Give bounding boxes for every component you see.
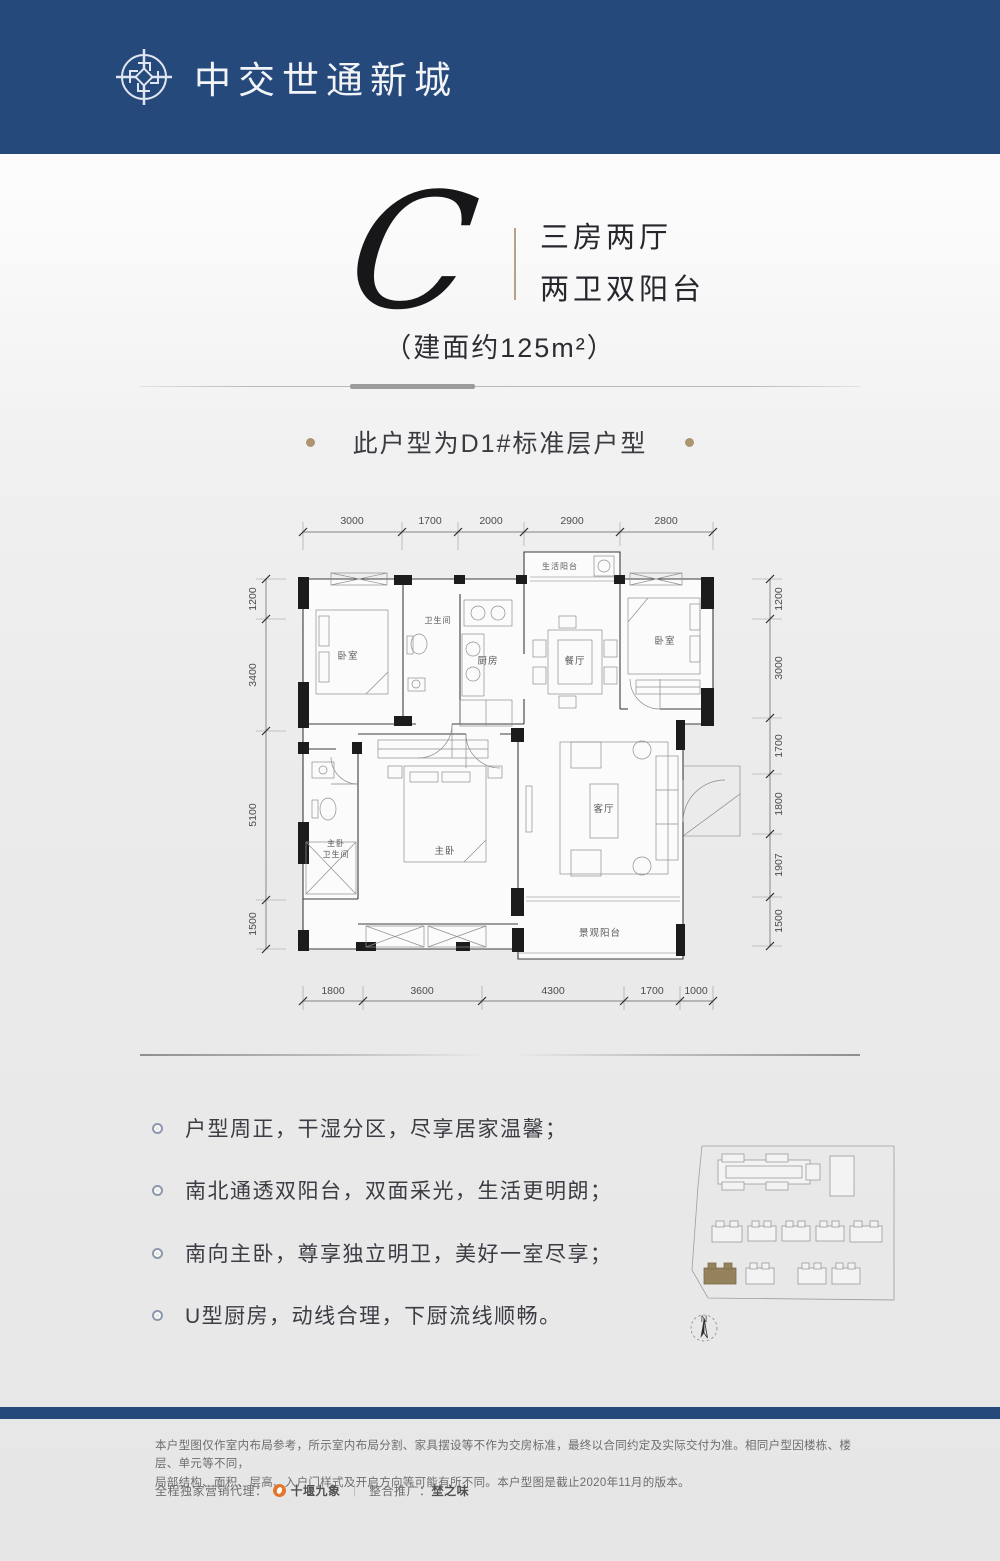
dim-label: 1000 xyxy=(684,985,708,997)
room-label-bedroom-right: 卧室 xyxy=(654,635,675,647)
dim-label: 1200 xyxy=(247,587,259,611)
site-building-block xyxy=(830,1156,854,1196)
dim-label: 1500 xyxy=(773,909,785,933)
agency-separator: ｜ xyxy=(349,1482,362,1499)
disclaimer-line1: 本户型图仅作室内布局参考，所示室内布局分割、家具摆设等不作为交房标准，最终以合同… xyxy=(155,1437,867,1474)
dims-right: 1200 3000 1700 1800 1907 1500 xyxy=(752,575,785,950)
compass-icon: N xyxy=(691,1314,717,1341)
floor-plan: 3000 1700 2000 2900 2800 1800 xyxy=(228,494,808,1044)
agency-logo-icon xyxy=(273,1484,286,1497)
room-label-master-bath-1: 主卧 xyxy=(327,838,345,848)
dim-label: 1800 xyxy=(321,985,345,997)
room-label-bedroom-left: 卧室 xyxy=(337,650,358,662)
room-label-dining: 餐厅 xyxy=(564,655,585,667)
room-label-master-bath-2: 卫生间 xyxy=(323,849,350,859)
brand-name: 中交世通新城 xyxy=(194,50,458,104)
promo-label: 整合推广： xyxy=(369,1482,432,1499)
floor-plan-svg: 3000 1700 2000 2900 2800 1800 xyxy=(228,494,808,1039)
feature-text: U型厨房，动线合理，下厨流线顺畅。 xyxy=(185,1303,562,1330)
site-map: N xyxy=(678,1130,948,1360)
dim-label: 5100 xyxy=(247,803,259,827)
area-note: （建面约125m²） xyxy=(0,326,1000,365)
decorative-divider-bottom xyxy=(140,1054,860,1056)
dim-label: 3400 xyxy=(247,663,259,687)
decorative-divider-top xyxy=(140,384,860,390)
ring-bullet-icon xyxy=(152,1248,163,1259)
room-label-view-balcony: 景观阳台 xyxy=(579,927,621,939)
dim-label: 1907 xyxy=(773,853,785,877)
feature-item: 南北通透双阳台，双面采光，生活更明朗； xyxy=(152,1178,672,1205)
gold-dot-right xyxy=(685,438,694,447)
dim-label: 3600 xyxy=(410,985,434,997)
header-band: 中交世通新城 xyxy=(0,0,1000,154)
promo-name: 埜之味 xyxy=(432,1482,470,1499)
entry-porch xyxy=(683,766,740,836)
site-row-bottom xyxy=(704,1263,860,1284)
dim-label: 1200 xyxy=(773,587,785,611)
subtitle-row: 此户型为D1#标准层户型 xyxy=(0,424,1000,460)
dim-label: 1500 xyxy=(247,912,259,936)
dim-label: 2000 xyxy=(479,515,503,527)
footer-blue-bar xyxy=(0,1407,1000,1419)
room-label-master-bedroom: 主卧 xyxy=(434,845,455,857)
dim-label: 2800 xyxy=(654,515,678,527)
subtitle-text: 此户型为D1#标准层户型 xyxy=(353,424,648,460)
unit-letter: C xyxy=(341,172,486,332)
tagline-line2: 两卫双阳台 xyxy=(540,264,705,316)
brand-logo-icon xyxy=(112,45,176,109)
unit-tagline: 三房两厅 两卫双阳台 xyxy=(540,212,705,316)
room-label-service-balcony: 生活阳台 xyxy=(542,561,578,571)
agency-row: 全程独家营销代理： 十堰九象 ｜ 整合推广： 埜之味 xyxy=(155,1482,477,1499)
dims-bottom: 1800 3600 4300 1700 1000 xyxy=(299,985,717,1010)
feature-list: 户型周正，干湿分区，尽享居家温馨； 南北通透双阳台，双面采光，生活更明朗； 南向… xyxy=(152,1116,672,1365)
gold-dot-left xyxy=(306,438,315,447)
dim-label: 4300 xyxy=(541,985,565,997)
dim-label: 3000 xyxy=(340,515,364,527)
agency-prefix: 全程独家营销代理： xyxy=(155,1482,268,1499)
outer-walls xyxy=(303,552,713,959)
dim-label: 1700 xyxy=(773,734,785,758)
dims-top: 3000 1700 2000 2900 2800 xyxy=(299,515,717,550)
dim-label: 1700 xyxy=(418,515,442,527)
dim-label: 1700 xyxy=(640,985,664,997)
ring-bullet-icon xyxy=(152,1310,163,1321)
title-divider xyxy=(514,228,516,300)
room-label-living: 客厅 xyxy=(593,803,614,815)
feature-item: 南向主卧，尊享独立明卫，美好一室尽享； xyxy=(152,1241,672,1268)
feature-text: 户型周正，干湿分区，尽享居家温馨； xyxy=(185,1116,568,1143)
room-label-bathroom: 卫生间 xyxy=(425,615,452,625)
dims-left: 1200 3400 5100 1500 xyxy=(247,575,286,953)
dim-label: 2900 xyxy=(560,515,584,527)
agency-name: 十堰九象 xyxy=(291,1482,341,1499)
site-building-long xyxy=(718,1154,820,1190)
room-label-kitchen: 厨房 xyxy=(477,655,498,667)
ring-bullet-icon xyxy=(152,1185,163,1196)
site-building-highlight xyxy=(704,1263,736,1284)
tagline-line1: 三房两厅 xyxy=(540,212,705,264)
feature-text: 南向主卧，尊享独立明卫，美好一室尽享； xyxy=(185,1241,613,1268)
dim-label: 1800 xyxy=(773,792,785,816)
flyer-page: 中交世通新城 C 三房两厅 两卫双阳台 （建面约125m²） 此户型为D1#标准… xyxy=(0,0,1000,1561)
ring-bullet-icon xyxy=(152,1123,163,1134)
feature-item: 户型周正，干湿分区，尽享居家温馨； xyxy=(152,1116,672,1143)
site-map-svg: N xyxy=(678,1130,948,1355)
dim-label: 3000 xyxy=(773,656,785,680)
site-row-middle xyxy=(712,1221,882,1242)
feature-item: U型厨房，动线合理，下厨流线顺畅。 xyxy=(152,1303,672,1330)
feature-text: 南北通透双阳台，双面采光，生活更明朗； xyxy=(185,1178,613,1205)
